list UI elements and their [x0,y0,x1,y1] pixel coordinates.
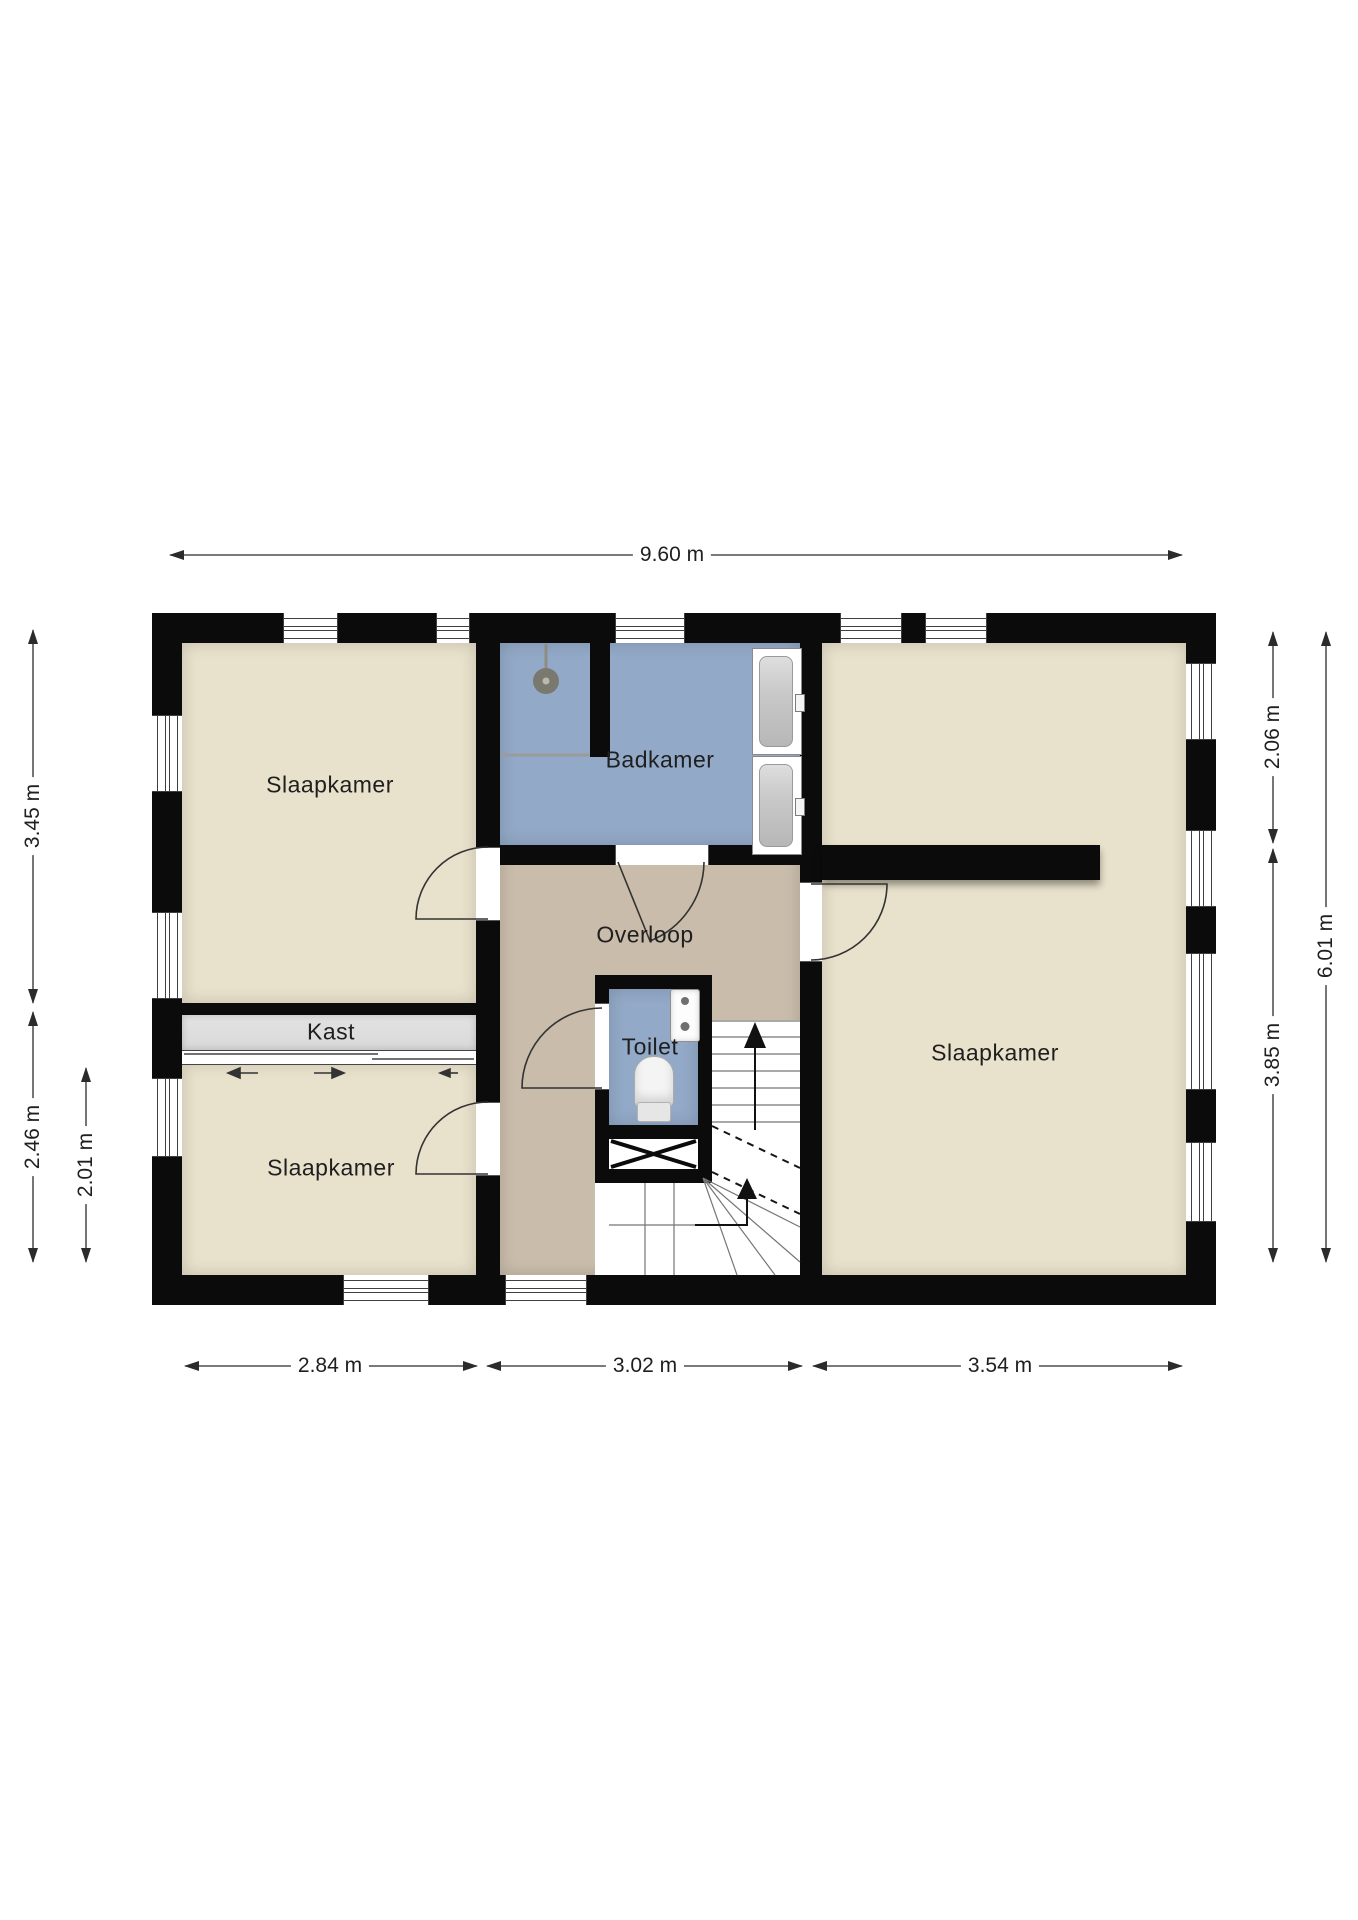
window [152,912,182,999]
window [152,1078,182,1157]
window [436,613,470,643]
door-opening-bathroom [615,845,709,865]
toilet-base [637,1102,671,1122]
room-label-bedroom-top-left: Slaapkamer [266,772,394,799]
wall-toilet-right [698,975,712,1183]
room-label-landing: Overloop [596,922,693,949]
room-label-closet: Kast [307,1019,355,1046]
dim-left-lower: 2.46 m [21,1098,45,1176]
drain-dot [681,1022,690,1031]
wall-toilet-top [595,975,712,989]
dim-left-lower-inner: 2.01 m [74,1126,98,1204]
door-opening-bedroom-top-left [476,847,500,921]
bath-cabinet-knob [795,798,805,816]
room-label-toilet: Toilet [622,1034,679,1061]
bath-cabinet [752,756,802,855]
dim-left-upper: 3.45 m [21,777,45,855]
dim-right-lower: 3.85 m [1261,1016,1285,1094]
room-bedroom-right [822,643,1186,1275]
dim-total-width: 9.60 m [633,543,711,567]
window [925,613,987,643]
window [152,715,182,792]
room-label-bedroom-right: Slaapkamer [931,1040,1059,1067]
stairs-upper-flight [712,1020,800,1183]
stairs-lower-flight [595,1183,800,1275]
window [343,1275,429,1305]
dim-bottom-left: 2.84 m [291,1354,369,1378]
wall-left-block-right [476,643,500,1275]
wall-closet-top [182,1003,476,1015]
door-opening-bedroom-bottom-left [476,1102,500,1176]
wall-shower-stub [590,643,610,757]
faucet-dot [681,997,689,1005]
room-label-bedroom-bottom-left: Slaapkamer [267,1155,395,1182]
window [840,613,902,643]
bath-cabinet-basin [759,656,793,747]
bath-cabinet-basin [759,764,793,847]
floor-plan-canvas: Slaapkamer Slaapkamer Slaapkamer Badkame… [0,0,1358,1920]
door-opening-bedroom-right [800,882,822,962]
window [1186,830,1216,907]
sliding-door-track [182,1050,476,1065]
window [1186,663,1216,740]
room-label-bathroom: Badkamer [606,747,715,774]
bath-cabinet [752,648,802,755]
window [505,1275,587,1305]
dim-right-upper: 2.06 m [1261,698,1285,776]
wall-toilet-mid [595,1125,712,1139]
wall-bedroom-right-divider [822,845,1100,880]
bath-cabinet-knob [795,694,805,712]
dim-right-total: 6.01 m [1314,907,1338,985]
shaft-void [609,1139,698,1169]
toilet-bowl [634,1056,674,1108]
wall-exterior-bottom [152,1275,1216,1305]
door-opening-toilet [595,1003,609,1090]
room-bedroom-top-left [182,643,476,1003]
dim-bottom-right: 3.54 m [961,1354,1039,1378]
window [615,613,685,643]
window [283,613,338,643]
wall-toilet-bottom [595,1169,712,1183]
dim-bottom-middle: 3.02 m [606,1354,684,1378]
window [1186,953,1216,1090]
window [1186,1142,1216,1222]
